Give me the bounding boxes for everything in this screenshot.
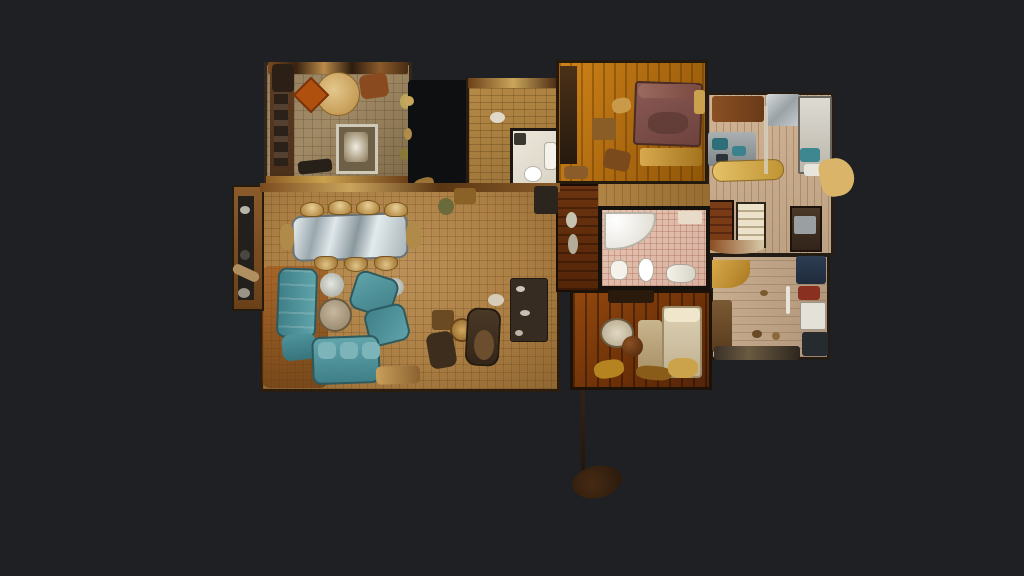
scan-tail-line: [581, 390, 585, 470]
glass-side-table-1: [320, 273, 344, 297]
dining-chair-top-3: [356, 200, 380, 215]
alcove-item-dark: [240, 250, 250, 260]
kitchen-divider-line: [764, 106, 768, 174]
powder-cabinet-dark: [514, 133, 526, 145]
kitchen-counter-teal-2: [732, 146, 746, 156]
master-door-clutter: [564, 166, 588, 179]
bedroom2-clutter-3: [668, 358, 698, 378]
utility-dark-unit: [802, 332, 828, 356]
bathroom-sink-left: [610, 260, 628, 280]
utility-speck-2: [752, 330, 762, 338]
utility-bottom-clutter: [714, 346, 800, 360]
utility-red-item: [798, 286, 820, 300]
bedroom2-globe: [622, 336, 643, 357]
bathroom-toilet: [638, 258, 654, 282]
bathroom-vanity-right: [666, 264, 696, 283]
stairs-winder-curve: [708, 240, 764, 254]
utility-washer-white: [800, 302, 826, 330]
floor-lamp-blob: [488, 294, 504, 306]
alcove-item-gray: [238, 288, 250, 298]
utility-navy-shelf: [796, 256, 826, 284]
kitchen-top-steel: [766, 94, 800, 126]
dining-chair-top-1: [300, 202, 324, 217]
master-bed-pillows: [638, 84, 700, 98]
master-bench: [640, 148, 702, 166]
bottom-bench: [376, 365, 421, 385]
kitchen-counter-teal-1: [712, 138, 728, 150]
study-corner-clutter: [272, 64, 294, 92]
bedroom2-bed-pillow: [664, 308, 700, 322]
master-wardrobe: [560, 66, 577, 164]
utility-white-line: [786, 286, 790, 314]
alcove-item-white: [240, 206, 250, 214]
dining-chair-top-4: [384, 202, 408, 217]
utility-left-clutter: [712, 300, 732, 352]
dining-chair-bottom-1: [314, 256, 338, 271]
master-dresser: [592, 118, 616, 140]
dining-chair-right-end: [406, 222, 421, 249]
hardwood-hall-strip: [556, 184, 602, 292]
bedroom2-frame-top: [608, 290, 654, 303]
study-skylight-inner: [344, 132, 368, 162]
master-bed-fold: [648, 112, 688, 134]
kitchen-oven-steel-front: [794, 216, 816, 234]
kitchen-right-teal: [800, 148, 820, 162]
hole-edge-blob-1: [404, 96, 414, 106]
bathroom-window-ledge: [678, 211, 702, 224]
hall-plant-white-1: [566, 212, 577, 228]
dining-chair-bottom-3: [374, 256, 398, 271]
powder-toilet: [524, 166, 542, 182]
kitchen-top-cabinet-brown: [712, 96, 764, 122]
woven-center-table: [318, 298, 352, 332]
dining-table: [291, 212, 409, 262]
console-speck-2: [520, 310, 530, 316]
living-dark-cabinet: [534, 186, 558, 214]
hall-plant-white-2: [568, 234, 578, 254]
study-armchair: [358, 72, 389, 100]
sofa-cushion-2: [340, 342, 358, 359]
living-crate: [454, 188, 476, 204]
hall-shoe-blob: [490, 112, 505, 123]
dining-chair-top-2: [328, 200, 352, 215]
hole-edge-blob-2: [404, 128, 412, 140]
hall-top-clutter: [468, 78, 558, 88]
living-plant: [438, 198, 454, 215]
living-top-wall: [260, 183, 560, 192]
dollhouse-view-canvas[interactable]: [0, 0, 1024, 576]
recliner-seat-swirl: [474, 330, 494, 360]
console-speck-1: [516, 286, 525, 292]
sectional-sofa-left: [276, 267, 318, 338]
console-speck-3: [515, 330, 523, 336]
unscanned-hole: [408, 80, 468, 186]
dining-chair-left-end: [280, 224, 294, 250]
kitchen-island: [712, 159, 785, 182]
utility-speck-3: [772, 332, 780, 340]
scan-tail-blob: [569, 461, 625, 503]
master-window-clutter: [694, 90, 705, 114]
utility-speck-1: [760, 290, 768, 296]
sofa-cushion-1: [318, 342, 336, 359]
sofa-cushion-3: [362, 342, 380, 359]
